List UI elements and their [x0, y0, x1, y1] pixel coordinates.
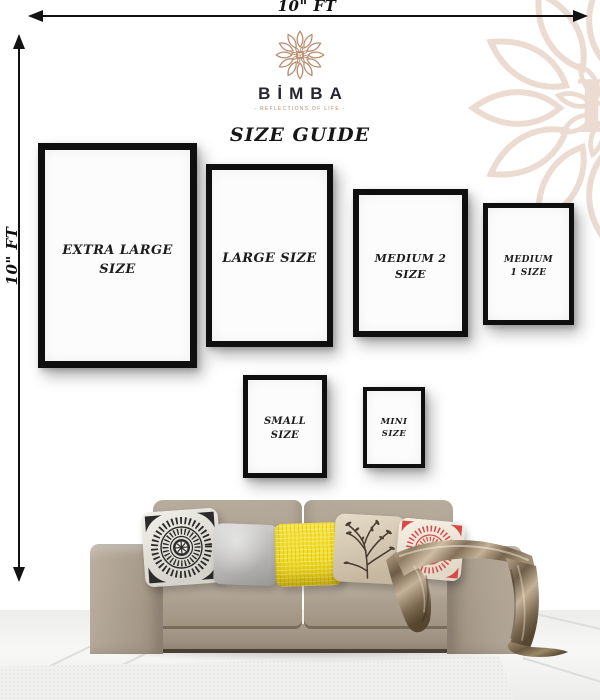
- throw-blanket: [378, 536, 574, 700]
- frame-label: MEDIUM 2 SIZE: [375, 251, 447, 282]
- bimba-logo-flower-icon: B: [273, 28, 327, 82]
- frame-extra-large: EXTRA LARGE SIZE: [38, 143, 197, 368]
- brand-header: B BİMBA - REFLECTIONS OF LIFE - SIZE GUI…: [0, 28, 600, 146]
- arrowhead-down-icon: [13, 567, 25, 582]
- svg-text:B: B: [297, 52, 302, 59]
- arrowhead-right-icon: [573, 10, 588, 22]
- frame-medium-2: MEDIUM 2 SIZE: [353, 189, 468, 337]
- height-dimension-label: 10" FT: [3, 226, 21, 286]
- pillow-yellow-knit: [274, 522, 342, 587]
- brand-tagline: - REFLECTIONS OF LIFE -: [0, 106, 600, 112]
- brand-name: BİMBA: [0, 84, 600, 104]
- frame-label: EXTRA LARGE SIZE: [62, 242, 174, 278]
- frame-small: SMALL SIZE: [243, 375, 327, 478]
- arrowhead-left-icon: [28, 10, 43, 22]
- width-dimension-arrow: 10" FT: [30, 15, 586, 17]
- frame-label: SMALL SIZE: [262, 415, 308, 443]
- frame-label: MINI SIZE: [377, 417, 411, 441]
- width-dimension-label: 10" FT: [262, 0, 352, 15]
- frame-medium-1: MEDIUM 1 SIZE: [483, 203, 574, 325]
- pillow-plain-gray: [213, 523, 278, 586]
- size-guide-poster: B 10" FT 10" FT B: [0, 0, 600, 700]
- frame-large: LARGE SIZE: [206, 164, 333, 347]
- frame-label: MEDIUM 1 SIZE: [500, 254, 558, 279]
- pillow-mandala-black-white: [140, 507, 222, 587]
- frame-mini: MINI SIZE: [363, 387, 425, 468]
- frame-label: LARGE SIZE: [222, 250, 316, 268]
